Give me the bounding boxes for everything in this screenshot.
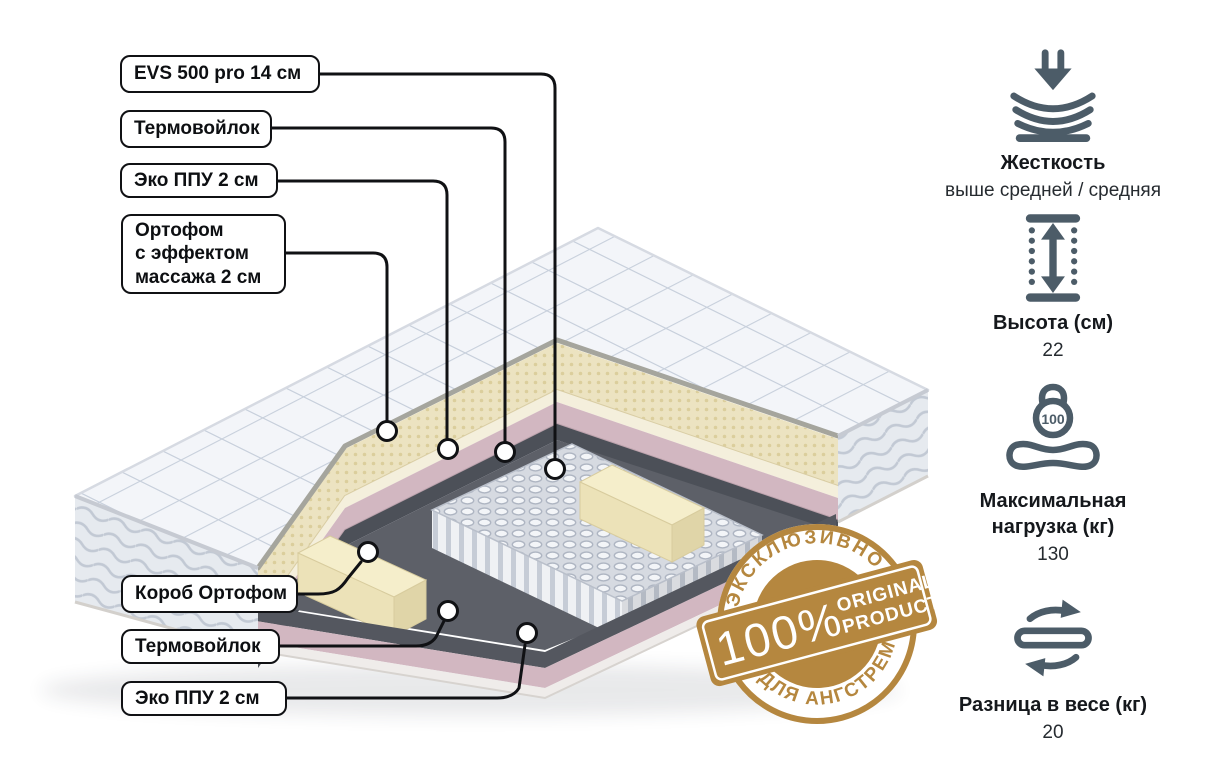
firmness-icon — [998, 46, 1108, 144]
weight-diff-icon — [1001, 590, 1105, 686]
max-load-icon-label: 100 — [1041, 411, 1065, 427]
endpoint-ortofoam — [378, 422, 397, 441]
callout-ecoppu-bottom: Эко ППУ 2 см — [121, 681, 287, 716]
callout-ortofoam-line3: массажа 2 см — [135, 266, 272, 289]
spec-max-load-title-line2: нагрузка (кг) — [918, 514, 1188, 540]
spec-max-load: 100 Максимальная нагрузка (кг) 130 — [918, 382, 1188, 568]
product-diagram-stage: ЭКСКЛЮЗИВНО ДЛЯ АНГСТРЕМ 100% ORIGINAL P… — [0, 0, 1211, 773]
endpoint-evs500 — [546, 460, 565, 479]
callout-foam-box-label: Короб Ортофом — [135, 582, 284, 605]
spec-firmness-title: Жесткость — [918, 150, 1188, 176]
spec-max-load-value: 130 — [918, 542, 1188, 568]
endpoint-ecoppu-top — [439, 440, 458, 459]
spec-height-title: Высота (см) — [918, 310, 1188, 336]
callout-ortofoam: Ортофом с эффектом массажа 2 см — [121, 214, 286, 294]
spec-firmness: Жесткость выше средней / средняя — [918, 46, 1188, 204]
height-icon — [1003, 212, 1103, 304]
callout-ortofoam-line1: Ортофом — [135, 219, 272, 242]
spec-height: Высота (см) 22 — [918, 212, 1188, 364]
spec-max-load-title-line1: Максимальная — [918, 488, 1188, 514]
callout-evs500: EVS 500 pro 14 см — [120, 55, 320, 93]
callout-ecoppu-top-label: Эко ППУ 2 см — [134, 169, 264, 192]
callout-ortofoam-line2: с эффектом — [135, 242, 272, 265]
spec-height-value: 22 — [918, 338, 1188, 364]
endpoint-thermo-top — [496, 443, 515, 462]
spec-weight-diff-title: Разница в весе (кг) — [918, 692, 1188, 718]
endpoint-thermo-bottom — [439, 602, 458, 621]
spec-weight-diff: Разница в весе (кг) 20 — [918, 590, 1188, 746]
spec-firmness-value: выше средней / средняя — [918, 178, 1188, 204]
callout-evs500-label: EVS 500 pro 14 см — [134, 62, 306, 85]
callout-ecoppu-top: Эко ППУ 2 см — [120, 163, 278, 198]
callout-foam-box: Короб Ортофом — [121, 575, 298, 613]
callout-thermo-top-label: Термовойлок — [134, 117, 258, 140]
callout-thermo-top: Термовойлок — [120, 110, 272, 148]
callout-thermo-bottom: Термовойлок — [121, 629, 280, 664]
callout-thermo-bottom-label: Термовойлок — [135, 635, 266, 658]
endpoint-ecoppu-bottom — [518, 624, 537, 643]
callout-ecoppu-bottom-label: Эко ППУ 2 см — [135, 687, 273, 710]
max-load-icon: 100 — [998, 382, 1108, 482]
spec-weight-diff-value: 20 — [918, 720, 1188, 746]
endpoint-foam-box — [359, 543, 378, 562]
